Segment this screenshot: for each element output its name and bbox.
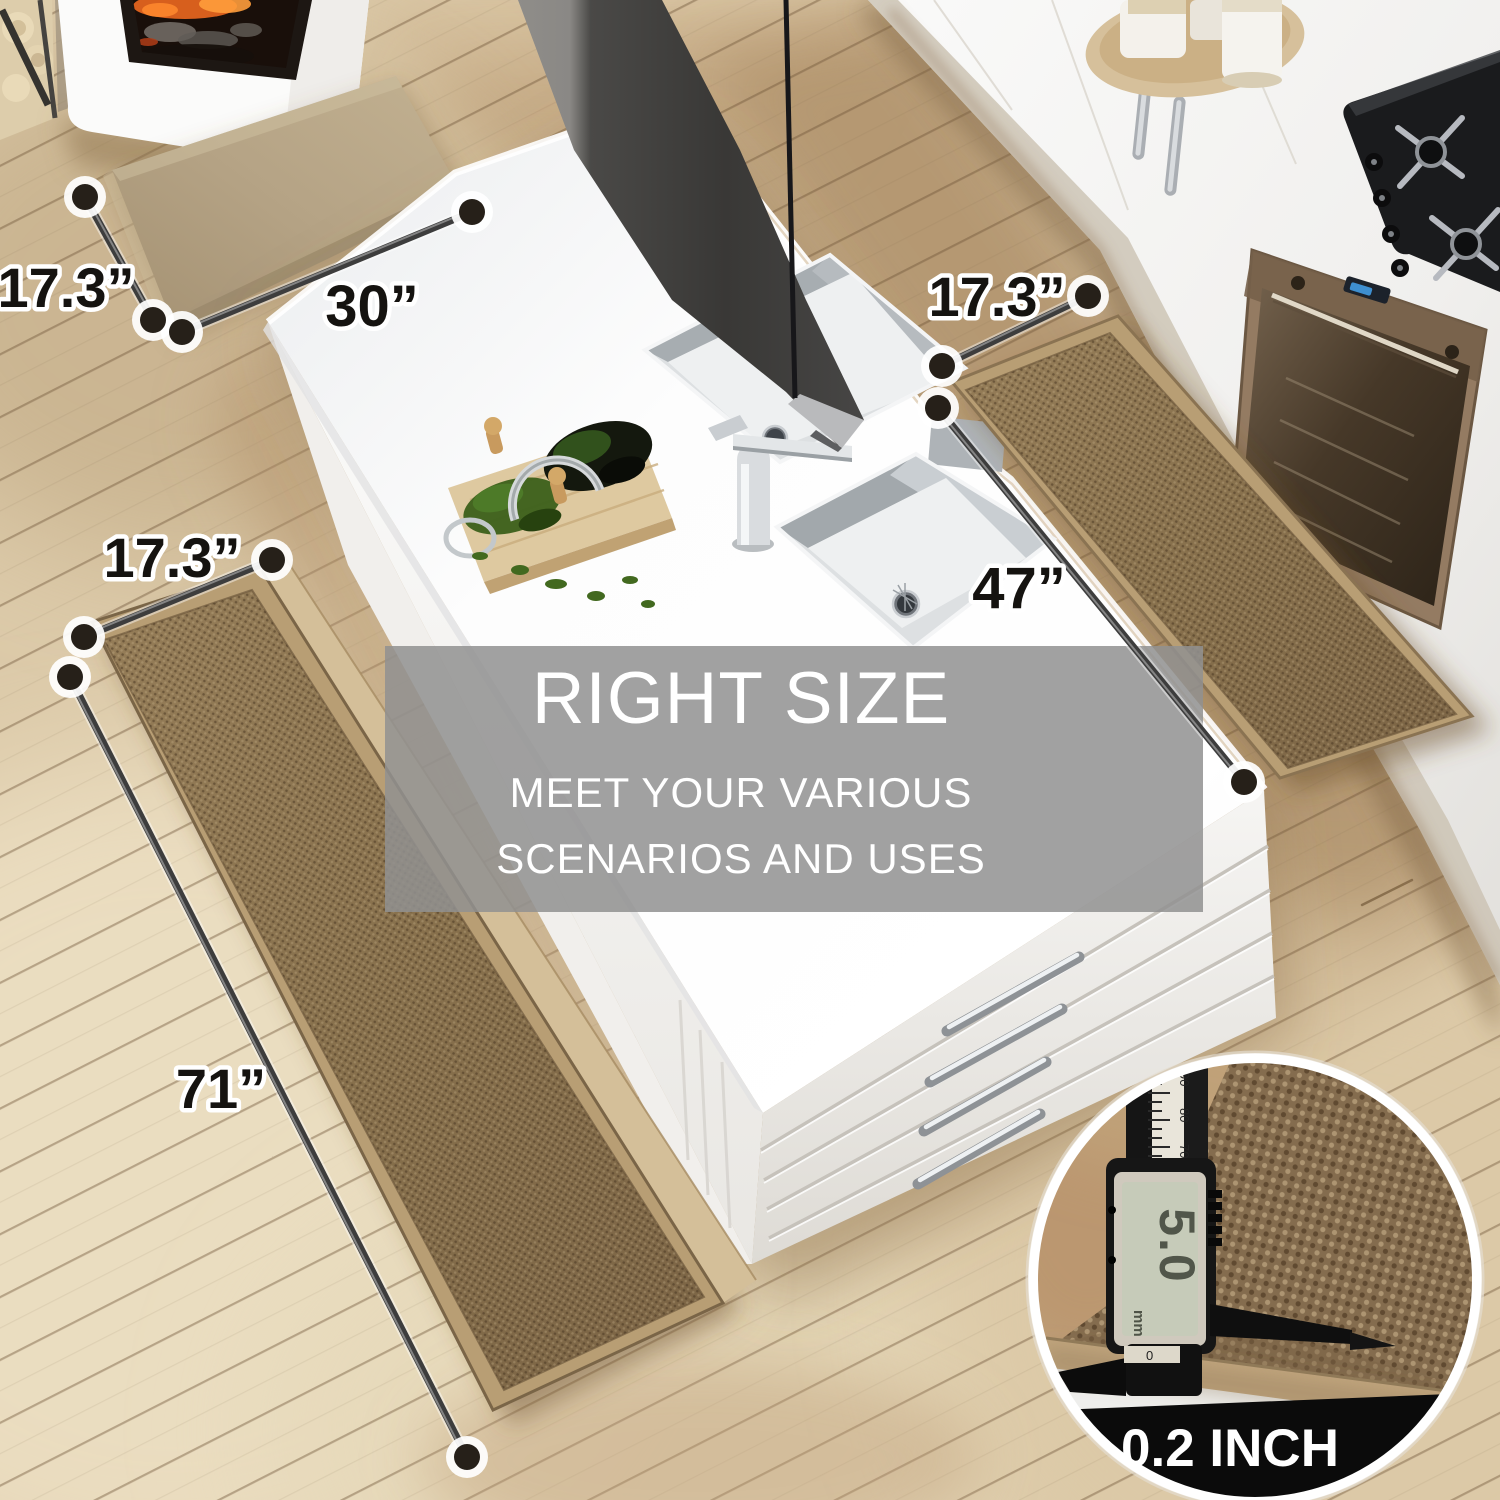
svg-text:0: 0 bbox=[1146, 1348, 1153, 1363]
svg-text:17.3”: 17.3” bbox=[929, 265, 1066, 328]
svg-text:5.0: 5.0 bbox=[1149, 1208, 1205, 1284]
svg-text:mm: mm bbox=[1130, 1310, 1147, 1337]
svg-text:47”: 47” bbox=[972, 556, 1066, 621]
svg-text:SCENARIOS AND USES: SCENARIOS AND USES bbox=[496, 835, 985, 882]
svg-text:MEET YOUR VARIOUS: MEET YOUR VARIOUS bbox=[510, 769, 973, 816]
svg-text:17.3”: 17.3” bbox=[104, 526, 241, 589]
svg-text:0.2 INCH: 0.2 INCH bbox=[1121, 1419, 1339, 1478]
svg-text:RIGHT SIZE: RIGHT SIZE bbox=[532, 658, 950, 739]
svg-text:70: 70 bbox=[1177, 1144, 1192, 1158]
svg-text:80: 80 bbox=[1177, 1108, 1192, 1122]
svg-text:30”: 30” bbox=[325, 274, 419, 339]
svg-text:17.3”: 17.3” bbox=[0, 256, 135, 319]
svg-text:71”: 71” bbox=[176, 1057, 266, 1120]
